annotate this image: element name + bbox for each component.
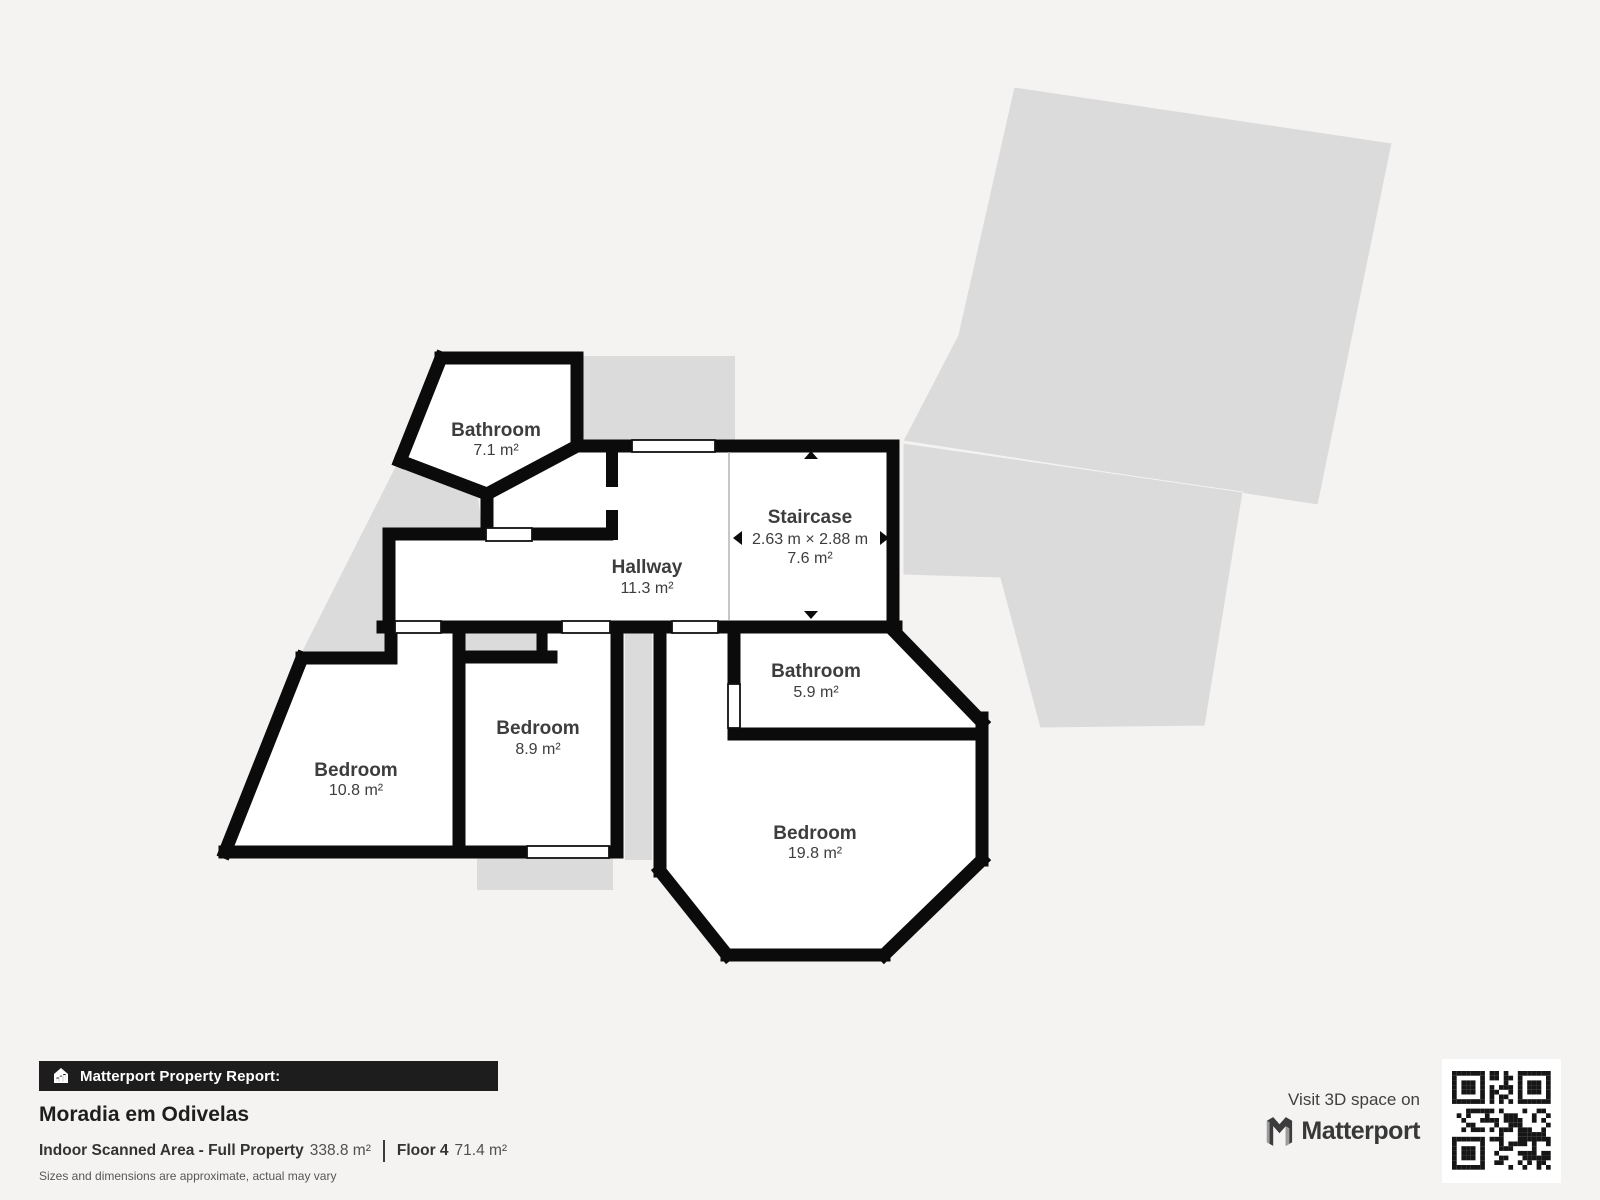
room-label: Bedroom — [773, 823, 856, 844]
room-area: 5.9 m² — [793, 684, 839, 701]
matterport-wordmark: Matterport — [1301, 1117, 1420, 1146]
room-area: 10.8 m² — [329, 782, 384, 799]
room-label: Bedroom — [314, 760, 397, 781]
matterport-floorplan-report: Bathroom 7.1 m² Hallway 11.3 m² Staircas… — [0, 0, 1600, 1200]
room-label: Bathroom — [771, 661, 861, 682]
qr-code-pattern — [1442, 1059, 1561, 1183]
disclaimer: Sizes and dimensions are approximate, ac… — [39, 1169, 739, 1183]
footprint-patch-top — [583, 356, 735, 446]
floor-label: Floor 4 — [397, 1142, 449, 1160]
room-label: Staircase — [768, 507, 853, 528]
matterport-logo-icon — [1266, 1116, 1293, 1147]
sill-bathroom-mid-door — [728, 684, 740, 728]
visit-3d-text: Visit 3D space on — [1120, 1090, 1420, 1110]
floor-area-value: 71.4 m² — [455, 1142, 508, 1160]
divider — [383, 1140, 385, 1162]
report-header-bar: Matterport Property Report: — [39, 1061, 498, 1091]
room-label: Hallway — [612, 557, 683, 578]
qr-code — [1442, 1059, 1561, 1183]
room-area: 19.8 m² — [788, 845, 843, 862]
footprint-gap-strip — [625, 632, 652, 860]
room-dims: 2.63 m × 2.88 m — [752, 531, 868, 548]
sill-bedroom-small-door — [562, 621, 610, 633]
house-chart-icon — [52, 1067, 70, 1085]
report-footer: Matterport Property Report: Moradia em O… — [39, 1061, 739, 1183]
promo-block: Visit 3D space on Matterport — [1120, 1090, 1420, 1147]
area-summary: Indoor Scanned Area - Full Property 338.… — [39, 1140, 739, 1162]
scanned-area-label: Indoor Scanned Area - Full Property — [39, 1142, 304, 1160]
floor-plan: Bathroom 7.1 m² Hallway 11.3 m² Staircas… — [0, 0, 1600, 1200]
room-label: Bedroom — [496, 718, 579, 739]
room-label: Bathroom — [451, 420, 541, 441]
property-name: Moradia em Odivelas — [39, 1103, 739, 1127]
sill-hall-bathroom-door — [486, 528, 532, 541]
footprint-below-bedroom — [477, 857, 613, 890]
sill-bedroom-small-window — [527, 846, 609, 858]
sill-bedroom-left-door — [395, 621, 441, 633]
scanned-area-value: 338.8 m² — [310, 1142, 371, 1160]
room-area: 8.9 m² — [515, 741, 561, 758]
footprint-upper — [903, 87, 1392, 505]
sill-bedroom-large-door — [672, 621, 718, 633]
room-area: 7.1 m² — [473, 442, 519, 459]
report-bar-label: Matterport Property Report: — [80, 1068, 280, 1085]
room-area: 7.6 m² — [787, 550, 833, 567]
room-area: 11.3 m² — [620, 580, 674, 597]
sill-top-window — [632, 440, 715, 452]
